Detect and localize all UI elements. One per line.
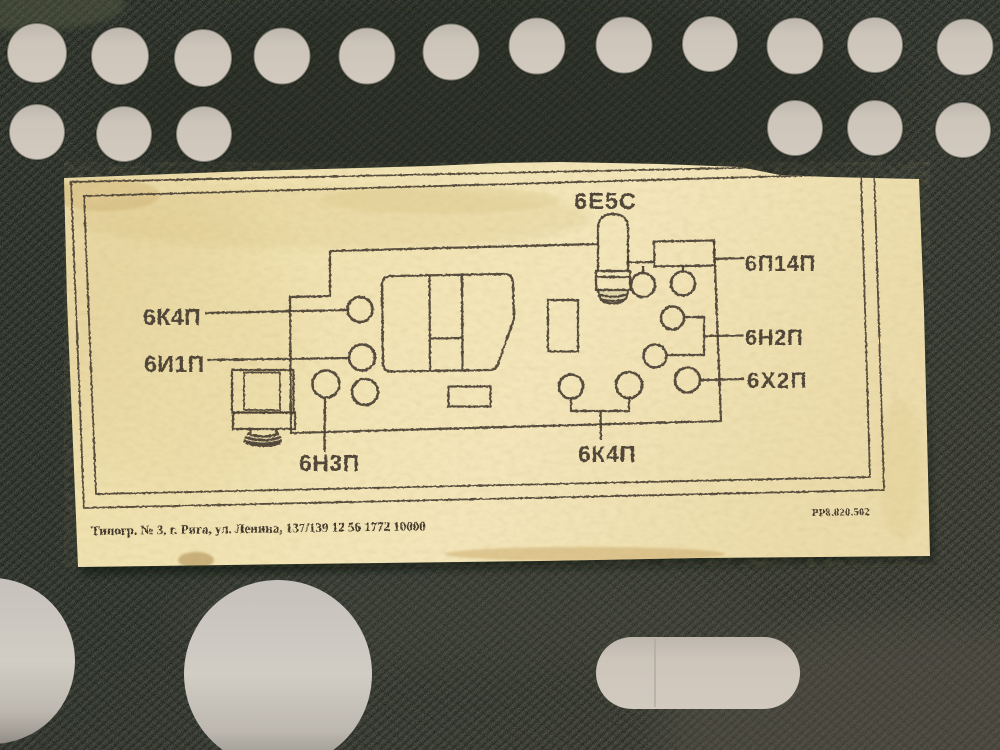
svg-text:6Н3П: 6Н3П [299,450,360,476]
svg-text:6Н2П: 6Н2П [745,325,803,350]
svg-text:6К4П: 6К4П [143,304,201,330]
svg-text:6Х2П: 6Х2П [747,368,808,393]
svg-text:6К4П: 6К4П [578,441,636,467]
svg-text:6П14П: 6П14П [745,251,816,276]
svg-text:6И1П: 6И1П [144,351,205,377]
svg-text:6Е5С: 6Е5С [574,188,637,214]
svg-text:РР8.820.502: РР8.820.502 [812,507,870,519]
